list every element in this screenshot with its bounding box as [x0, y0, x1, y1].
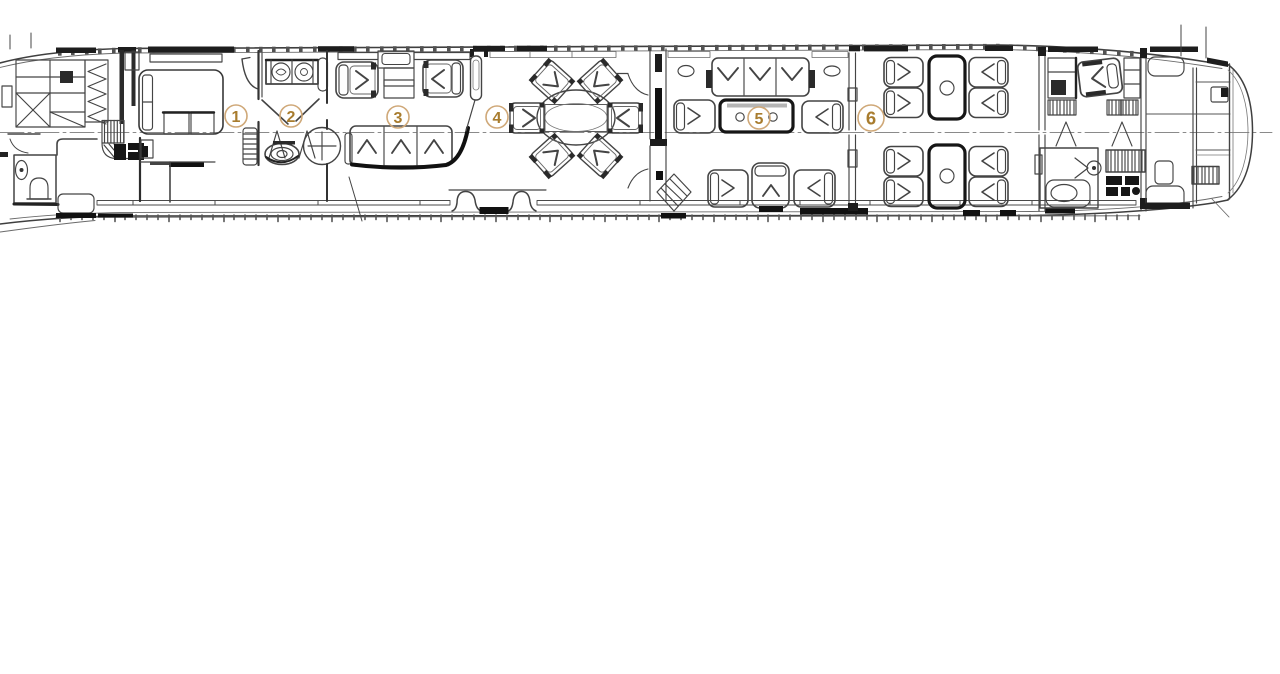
- svg-text:3: 3: [394, 110, 403, 127]
- svg-text:4: 4: [493, 110, 502, 127]
- svg-text:5: 5: [755, 111, 764, 128]
- svg-text:1: 1: [232, 109, 241, 126]
- svg-text:2: 2: [287, 109, 296, 126]
- svg-text:6: 6: [866, 108, 876, 129]
